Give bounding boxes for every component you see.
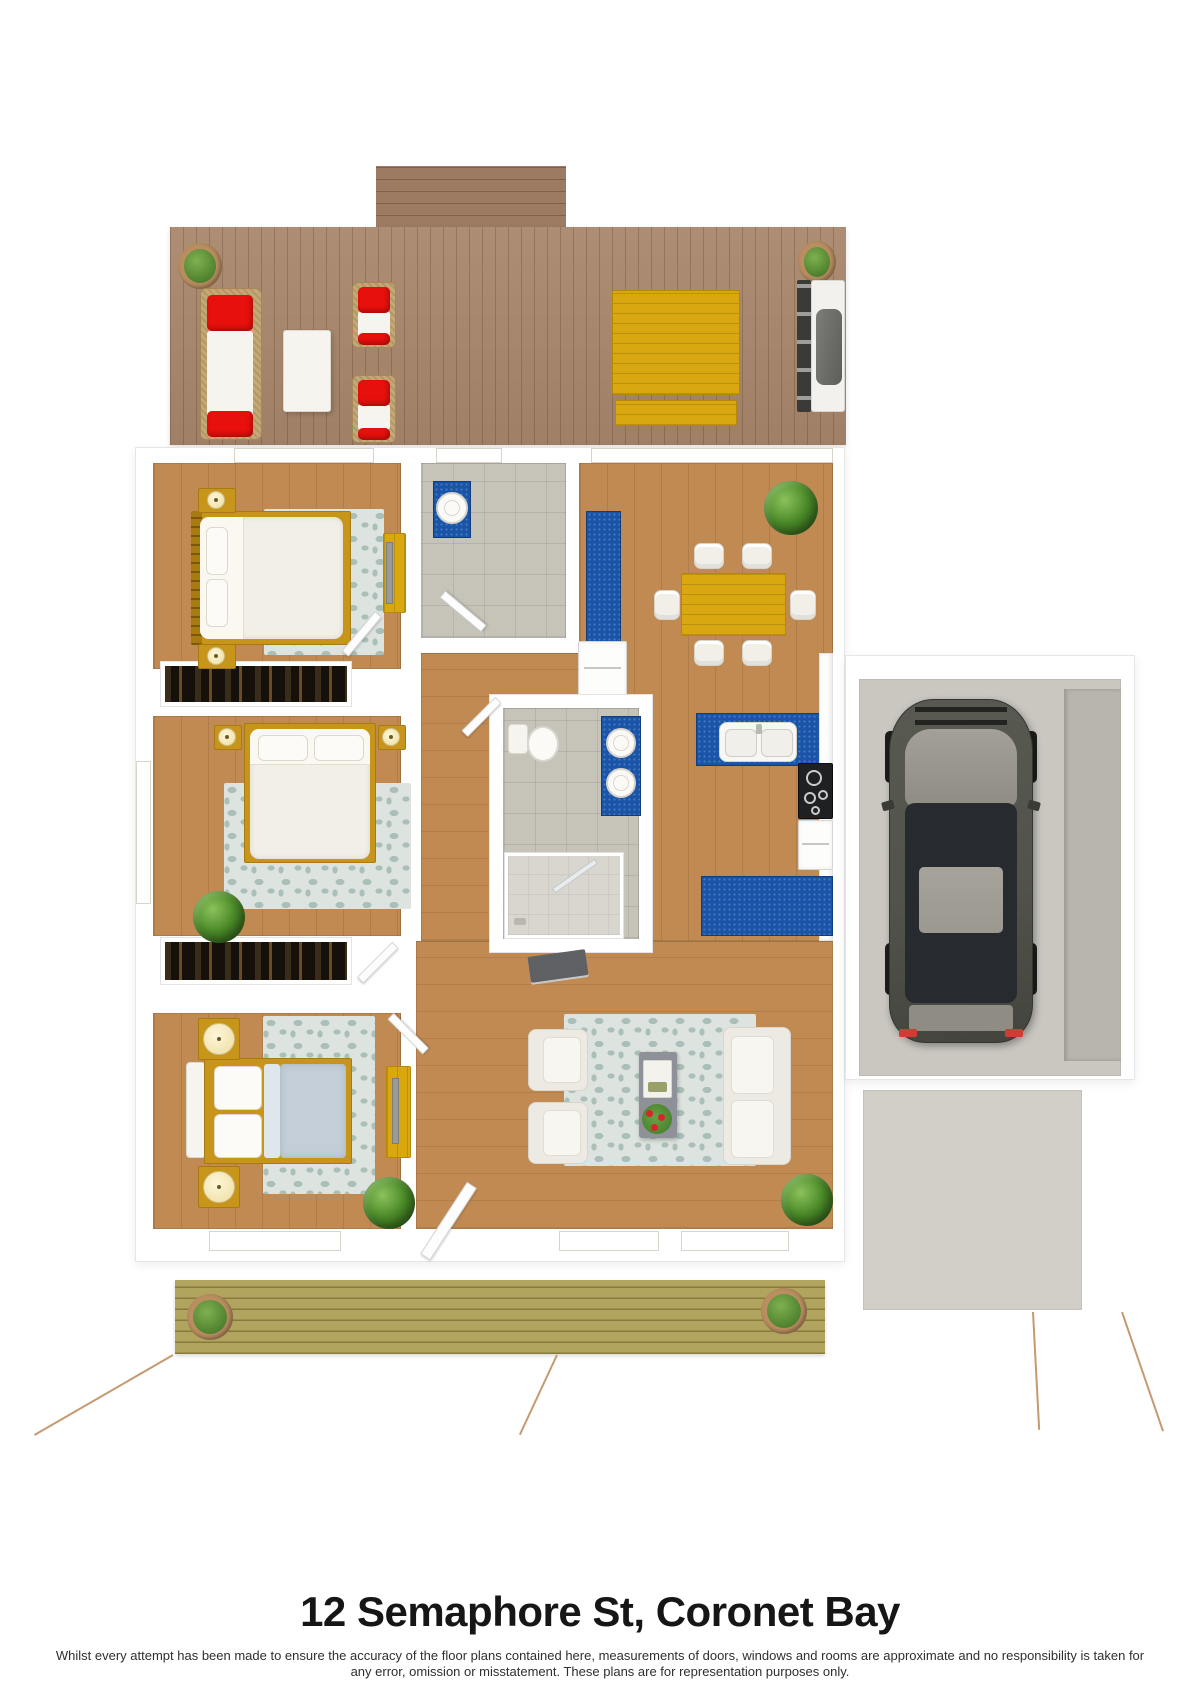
indoor-plant xyxy=(193,891,245,943)
red-cushion xyxy=(358,333,390,345)
kitchen-counter-return xyxy=(701,876,833,936)
outdoor-coffee-table xyxy=(283,330,331,412)
oven xyxy=(798,820,833,870)
armchair xyxy=(528,1102,588,1164)
living-window xyxy=(559,1231,659,1251)
laundry-sink xyxy=(436,492,468,524)
shower-screen xyxy=(552,859,598,894)
burner xyxy=(806,770,822,786)
bedside-lamp xyxy=(203,1171,235,1203)
flower-vase xyxy=(642,1104,672,1134)
bottom-deck xyxy=(175,1280,825,1354)
ground-line xyxy=(1121,1312,1164,1432)
sink-basin xyxy=(725,729,757,757)
potted-plant xyxy=(178,243,222,289)
bedroom-3-sheet-fold xyxy=(264,1064,280,1158)
tray xyxy=(643,1060,672,1098)
vanity-basin xyxy=(606,728,636,758)
bedroom-3-bench xyxy=(186,1062,206,1158)
laundry-window xyxy=(436,448,502,463)
faucet xyxy=(756,724,762,734)
potted-plant xyxy=(761,1288,807,1334)
outdoor-armchair xyxy=(352,282,396,348)
red-cushion xyxy=(207,411,253,437)
car-roof-rack xyxy=(915,707,1007,725)
pillow xyxy=(206,527,228,575)
ground-line xyxy=(519,1355,558,1436)
garage-side-wall xyxy=(1064,689,1121,1061)
shower xyxy=(505,853,623,938)
bedroom-3-tv xyxy=(392,1078,399,1144)
bedroom-1-tv xyxy=(386,542,393,604)
sofa-cushion xyxy=(207,331,253,419)
bedroom-1-window xyxy=(234,448,374,463)
driveway xyxy=(863,1090,1082,1310)
bedside-lamp xyxy=(218,728,236,746)
coffee-table xyxy=(639,1052,677,1138)
disclaimer-text: Whilst every attempt has been made to en… xyxy=(0,1648,1200,1680)
red-cushion xyxy=(358,428,390,440)
vanity-basin xyxy=(606,768,636,798)
dining-chair xyxy=(742,543,772,569)
red-cushion xyxy=(358,380,390,406)
bedside-lamp xyxy=(207,491,225,509)
car-taillight xyxy=(1005,1029,1023,1037)
page-title: 12 Semaphore St, Coronet Bay xyxy=(0,1588,1200,1636)
fridge xyxy=(578,641,627,699)
garage xyxy=(845,655,1135,1080)
burner xyxy=(818,790,828,800)
sink-basin xyxy=(761,729,793,757)
outdoor-sofa xyxy=(200,288,262,440)
cooktop xyxy=(798,763,833,819)
bedroom-2-window xyxy=(136,761,151,904)
dining-table xyxy=(681,573,786,636)
sofa xyxy=(723,1027,791,1165)
pillow xyxy=(258,735,308,761)
armchair xyxy=(528,1029,588,1091)
dining-chair xyxy=(742,640,772,666)
dining-chair xyxy=(790,590,816,620)
hall-runner-rug xyxy=(586,511,621,646)
burner xyxy=(804,792,816,804)
car-trunk xyxy=(909,1005,1013,1031)
dining-sliding-door xyxy=(591,448,833,463)
chair-cushion xyxy=(358,404,390,430)
pillow xyxy=(214,1114,262,1158)
toilet-cistern xyxy=(508,724,528,754)
outdoor-armchair xyxy=(352,375,396,443)
floor-plan-page: 12 Semaphore St, Coronet Bay Whilst ever… xyxy=(0,0,1200,1697)
ground-line xyxy=(34,1354,174,1436)
bedside-lamp xyxy=(203,1023,235,1055)
house-outline xyxy=(135,447,845,1262)
bbq-side-panel xyxy=(797,280,811,412)
indoor-plant xyxy=(764,481,818,535)
pillow xyxy=(206,579,228,627)
living-window xyxy=(681,1231,789,1251)
deck-steps xyxy=(376,166,566,228)
wardrobe xyxy=(161,938,351,984)
top-deck xyxy=(170,227,846,445)
indoor-plant xyxy=(781,1174,833,1226)
potted-plant xyxy=(798,241,836,283)
bedroom-3-duvet xyxy=(280,1064,346,1158)
pillow xyxy=(314,735,364,761)
red-cushion xyxy=(207,295,253,331)
dining-chair xyxy=(654,590,680,620)
wardrobe xyxy=(161,662,351,706)
burner xyxy=(811,806,820,815)
kitchen-sink xyxy=(719,722,797,762)
dining-chair xyxy=(694,543,724,569)
car-roof xyxy=(919,867,1003,933)
potted-plant xyxy=(187,1294,233,1340)
bbq-grill xyxy=(811,280,845,412)
shower-head xyxy=(514,918,526,925)
bedside-lamp xyxy=(207,647,225,665)
pillow xyxy=(214,1066,262,1110)
car-taillight xyxy=(899,1029,917,1037)
bedside-lamp xyxy=(382,728,400,746)
toilet xyxy=(527,726,559,762)
picnic-table xyxy=(612,290,740,395)
disclaimer-line-2: any error, omission or misstatement. The… xyxy=(0,1664,1200,1680)
picnic-bench xyxy=(615,400,737,426)
bedroom-2-door xyxy=(357,942,399,984)
dining-chair xyxy=(694,640,724,666)
bbq-hood xyxy=(816,309,842,385)
ground-line xyxy=(1032,1312,1040,1430)
red-cushion xyxy=(358,287,390,313)
car xyxy=(889,699,1033,1043)
car-hood xyxy=(905,729,1017,807)
indoor-plant xyxy=(363,1177,415,1229)
disclaimer-line-1: Whilst every attempt has been made to en… xyxy=(0,1648,1200,1664)
bedroom-3-window xyxy=(209,1231,341,1251)
